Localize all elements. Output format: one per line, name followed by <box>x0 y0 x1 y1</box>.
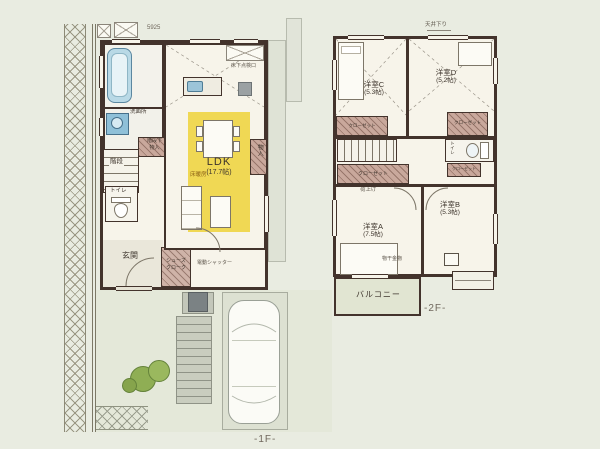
ceiling-drop-label: 天井下り <box>425 22 447 29</box>
room-c-name: 洋室C <box>352 80 396 89</box>
room-d-name: 洋室D <box>424 68 468 77</box>
closet-b-label: クローゼット <box>447 167 481 172</box>
room-a-door-arc <box>394 188 416 210</box>
kitchen-sink <box>187 81 203 92</box>
pillow-room-c <box>341 46 361 54</box>
room-c-label: 洋室C (5.3帖) <box>352 80 396 97</box>
window <box>332 200 337 236</box>
room-a-name: 洋室A <box>348 222 398 231</box>
room-c-size: (5.3帖) <box>352 89 396 97</box>
room-b-size: (5.3帖) <box>428 209 472 217</box>
bush <box>148 360 170 382</box>
car-roof-line <box>232 386 276 387</box>
toilet-2f-tank <box>480 142 489 159</box>
dimension-label: 5925 <box>147 25 160 32</box>
window <box>493 58 498 84</box>
bush <box>122 378 137 393</box>
cross-hatch-band <box>96 406 148 430</box>
ldk-name: LDK <box>193 156 245 169</box>
closet-c-label: クローゼット <box>336 123 388 128</box>
shutter-label: 電動シャッター <box>197 260 232 266</box>
window <box>428 35 468 40</box>
eaves-strip <box>268 40 286 262</box>
laundry-hardware-label: 物干金物 <box>382 256 402 262</box>
ceiling-drop-tick <box>427 30 451 31</box>
toilet-1f-label: トイレ <box>110 188 127 195</box>
floor1-label: -1F- <box>254 434 276 446</box>
window <box>99 118 104 136</box>
floor-plan-canvas: 5925 洗面所 階段 階段下 物入 トイレ 玄関 シューズ クローク 床下点検… <box>0 0 600 449</box>
dining-chair <box>196 141 203 152</box>
sofa <box>181 186 202 230</box>
approach-stairs <box>176 316 212 404</box>
outdoor-unit-icon <box>114 22 138 38</box>
porch-step-dark <box>188 292 208 312</box>
living-table <box>210 196 231 228</box>
ldk-door-arc <box>196 228 220 252</box>
room-d-size: (5.2帖) <box>424 77 468 85</box>
room-a-size: (7.5帖) <box>348 231 398 239</box>
outdoor-unit-icon <box>97 24 111 38</box>
floor2-label: -2F- <box>424 303 446 315</box>
hoist-label: 荷上げ <box>360 187 377 194</box>
bay-window-line <box>455 280 491 281</box>
stairs-2f <box>337 139 397 162</box>
stairs-label: 階段 <box>109 158 124 166</box>
window <box>234 39 258 44</box>
neighbor-strip <box>286 18 302 102</box>
vanity-basin <box>111 117 123 129</box>
closet-a-label: クローゼット <box>337 171 409 177</box>
car-windshield <box>231 314 277 334</box>
room-d-label: 洋室D (5.2帖) <box>424 68 468 85</box>
storage-1f-label: 物入 <box>255 144 262 156</box>
room-a-label: 洋室A (7.5帖) <box>348 222 398 239</box>
toilet-2f-label: トイレ <box>450 141 455 155</box>
ldk-size: (17.7帖) <box>193 169 245 177</box>
toilet-2f-bowl <box>466 143 479 158</box>
room-b-door-arc <box>426 188 448 210</box>
dining-chair <box>196 126 203 137</box>
balcony-door <box>352 274 388 279</box>
washroom-label: 洗面所 <box>130 109 147 116</box>
window <box>190 39 220 44</box>
car-rear-window <box>231 394 277 412</box>
shoe-closet-line2: クローク <box>161 265 191 272</box>
window <box>112 39 140 44</box>
window <box>99 56 104 88</box>
cupboard <box>226 45 264 61</box>
stool-room-b <box>444 253 459 266</box>
window <box>493 214 498 244</box>
bathtub-inner <box>111 53 128 97</box>
entrance-door <box>116 286 152 291</box>
wall-a-b <box>421 187 424 277</box>
bed-room-d <box>458 42 492 66</box>
floor-inspection-label: 床下点検口 <box>231 63 256 69</box>
shoe-closet-label: シューズ クローク <box>161 258 191 271</box>
entrance-door-arc <box>126 258 154 286</box>
dining-chair <box>233 141 240 152</box>
window <box>332 60 337 90</box>
boundary-hatch-strip <box>64 24 86 432</box>
dining-chair <box>233 126 240 137</box>
wall-c-d <box>406 39 409 136</box>
wall-mid-lower <box>336 184 494 187</box>
car-roof-line <box>232 340 276 341</box>
closet-d-label: クローゼット <box>447 120 488 125</box>
balcony-label: バルコニー <box>356 290 401 300</box>
window <box>264 196 269 232</box>
window <box>348 35 384 40</box>
refrigerator <box>238 82 252 96</box>
ldk-label: LDK (17.7帖) <box>193 156 245 178</box>
dining-table <box>203 120 233 158</box>
